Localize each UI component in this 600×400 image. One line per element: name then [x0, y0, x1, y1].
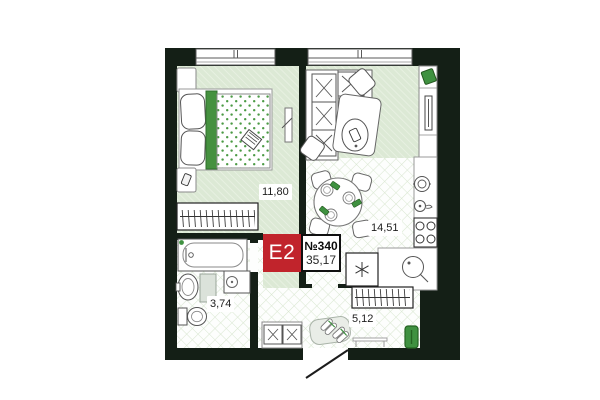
apartment-total-area: 35,17 — [306, 253, 336, 267]
window-bedroom — [196, 49, 275, 65]
corner-sofa — [299, 67, 382, 162]
room-area-label-kitchen: 14,51 — [368, 220, 402, 236]
room-area-label-bathroom: 3,74 — [207, 296, 234, 312]
wardrobe-hallway — [352, 287, 413, 308]
entry-bench — [262, 322, 302, 348]
sofa-cushion — [312, 74, 336, 102]
bed-headboard — [206, 91, 217, 169]
nightstand — [177, 68, 196, 92]
tv-cabinet — [419, 66, 437, 157]
tv — [425, 96, 432, 130]
wardrobe-bedroom — [177, 203, 258, 230]
stove — [414, 218, 437, 247]
sofa-cushion — [312, 102, 336, 130]
room-area-label-bedroom: 11,80 — [259, 184, 292, 200]
bed-duvet — [217, 94, 270, 168]
bathroom-door-opening — [250, 243, 258, 272]
toilet — [178, 308, 207, 326]
plan-type-badge: E2 — [263, 234, 301, 272]
floorplan-drawing — [0, 0, 600, 400]
side-table — [177, 168, 196, 192]
bed — [179, 89, 272, 170]
apartment-info-box: №340 35,17 — [301, 234, 341, 272]
pillow — [180, 131, 205, 166]
pouf — [342, 119, 368, 151]
washing-machine — [224, 271, 250, 293]
bathtub — [178, 239, 247, 271]
floorplan-canvas: 11,80 14,51 3,74 5,12 E2 №340 35,17 — [0, 0, 600, 400]
apartment-number: №340 — [304, 239, 337, 253]
room-area-label-hallway: 5,12 — [349, 311, 376, 327]
pillow — [180, 93, 206, 129]
fridge — [346, 253, 378, 286]
doormat — [405, 326, 418, 348]
window-living-room — [308, 49, 412, 65]
